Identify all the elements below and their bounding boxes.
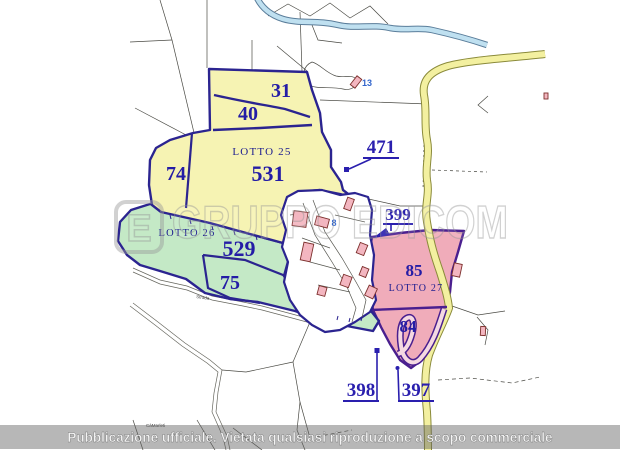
parcel-85-label: 85 <box>406 261 423 280</box>
cadastral-map: 31 40 74 531 529 75 85 84 LOTTO 25 LOTTO… <box>0 0 620 450</box>
parcel-31-label: 31 <box>271 80 291 102</box>
house-13-label: 13 <box>362 78 372 88</box>
cadastral-map-page: 31 40 74 531 529 75 85 84 LOTTO 25 LOTTO… <box>0 0 620 450</box>
parcel-75-label: 75 <box>220 272 240 294</box>
annotation-398: 398 <box>347 380 376 401</box>
annotation-471: 471 <box>367 137 396 158</box>
lotto27-label: LOTTO 27 <box>389 283 444 294</box>
parcel-40-label: 40 <box>238 103 258 125</box>
watermark-logo-letter: E <box>126 208 151 250</box>
banner-text: Pubblicazione ufficiale. Vietata qualsia… <box>67 430 553 445</box>
annotation-397-dot <box>396 366 400 370</box>
parcel-531-label: 531 <box>252 161 285 186</box>
annotation-397: 397 <box>402 380 431 401</box>
watermark: E GRUPPO EDICOM <box>116 196 508 252</box>
parcel-74-label: 74 <box>166 163 186 185</box>
annotation-398-dot <box>375 348 380 353</box>
parcel-84-label: 84 <box>400 317 418 336</box>
lotto25-label: LOTTO 25 <box>232 146 291 158</box>
watermark-brand-text: GRUPPO EDICOM <box>172 196 508 248</box>
annotation-471-dot <box>344 167 349 172</box>
bottom-banner: Pubblicazione ufficiale. Vietata qualsia… <box>0 425 620 449</box>
